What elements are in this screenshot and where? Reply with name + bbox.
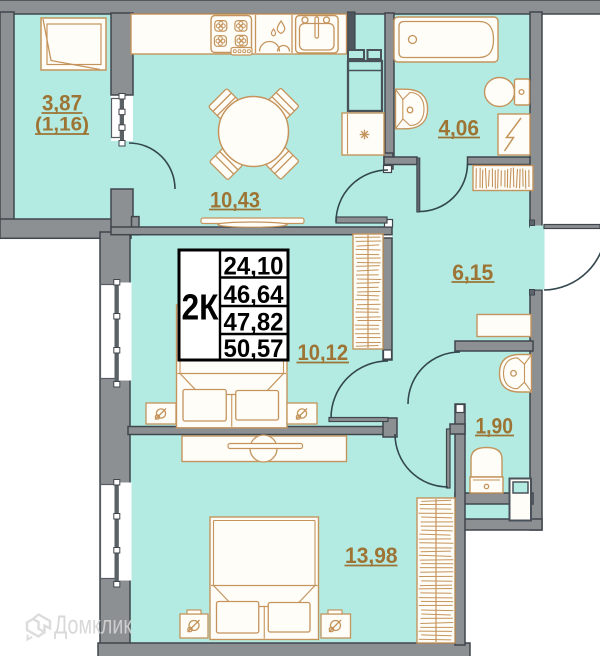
svg-text:47,82: 47,82: [224, 309, 284, 337]
svg-text:24,10: 24,10: [224, 253, 284, 281]
svg-text:10,12: 10,12: [298, 340, 349, 365]
svg-text:2К: 2К: [182, 287, 220, 328]
svg-text:13,98: 13,98: [345, 543, 398, 568]
svg-text:50,57: 50,57: [224, 335, 284, 363]
svg-text:(1,16): (1,16): [35, 115, 89, 136]
svg-text:46,64: 46,64: [224, 281, 284, 309]
svg-text:Домклик: Домклик: [54, 610, 132, 640]
svg-text:3,87: 3,87: [42, 91, 82, 116]
